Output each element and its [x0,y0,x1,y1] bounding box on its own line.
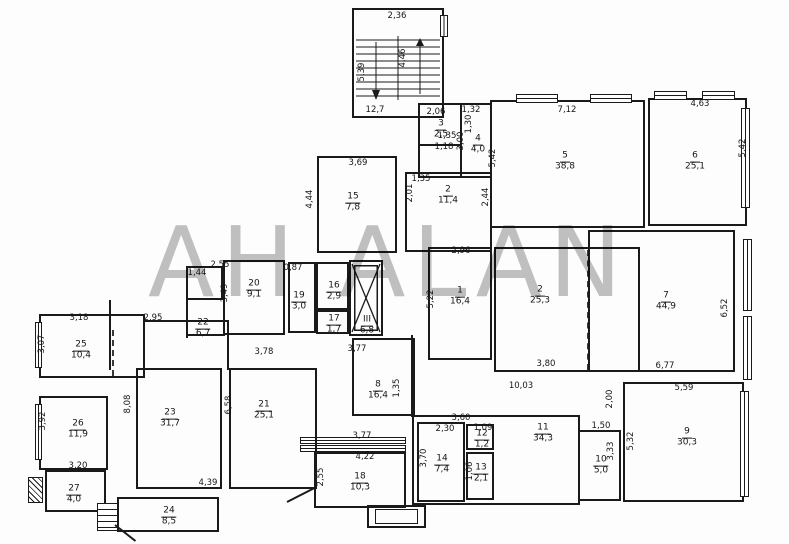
room-label-24-28: 248,5 [161,499,176,528]
dimension-47: 3,20 [69,461,88,471]
room-label-23-24: 2331,7 [160,401,180,430]
dimension-48: 3,92 [38,412,48,431]
room-label-2-13: 225,3 [530,278,550,307]
room-label-21-23: 2125,1 [254,393,274,422]
room-label-6-3: 625,1 [685,144,705,173]
dimension-28: 3,78 [255,347,274,357]
dimension-39: 3,70 [419,449,429,468]
dimension-20: 2,55 [211,260,230,270]
room-label-15-4: 157,8 [345,185,360,214]
dimension-13: 5,42 [488,149,498,168]
dimension-29: 3,77 [348,344,367,354]
dimension-45: 8,08 [123,395,133,414]
dimension-6: 1,35 [438,131,457,141]
window [740,391,749,497]
dimension-52: 1,35 [392,379,402,398]
dimension-49: 3,18 [70,313,89,323]
window [590,94,632,103]
dimension-2: 4,46 [398,49,408,68]
dimension-38: 1,09 [474,423,493,433]
dimension-40: 1,06 [465,462,475,481]
room-label-27-27: 274,0 [66,477,81,506]
room-label-25-25: 2510,4 [71,333,91,362]
window [654,91,687,100]
dimension-3: 12,7 [366,105,385,115]
room-label-18-22: 1810,3 [350,465,370,494]
wall-diagonal [287,487,315,502]
dimension-17: 3,69 [349,158,368,168]
dimension-1: 5,39 [357,63,367,82]
dimension-27: 6,77 [656,361,675,371]
room-label-22-10: 226,7 [195,311,210,340]
room-label-8-15: 816,4 [368,373,388,402]
dimension-50: 3,07 [37,335,47,354]
dimension-11: 4,63 [691,99,710,109]
dimension-33: 5,59 [675,383,694,393]
room-label-9-16: 930,3 [677,420,697,449]
dimension-46: 4,39 [199,478,218,488]
dimension-35: 3,33 [606,442,616,461]
dimension-8: 1,32 [462,105,481,115]
room-label-14-21: 147,4 [434,447,449,476]
dimension-21: 0,87 [284,263,303,273]
floor-plan: АН ALAN 32,544,0538,8625,1157,8211,4209,… [0,0,789,544]
wall [227,322,229,370]
dimension-37: 2,30 [436,424,455,434]
dimension-51: 2,95 [144,313,163,323]
room-label-11-18: 1134,3 [533,416,553,445]
room-25-outline [39,314,145,378]
dimension-22: 1,44 [188,268,207,278]
dimension-23: 3,49 [220,284,230,303]
room-label-5-2: 538,8 [555,144,575,173]
room-label-20-6: 209,1 [246,272,261,301]
room-21-outline [229,368,317,489]
dimension-24: 5,22 [426,290,436,309]
window-hatch [28,477,43,503]
dimension-4: 2,06 [427,107,446,117]
entrance-stoop-inner [375,509,418,524]
dimension-7: 1,18 [435,142,454,152]
dimension-12: 5,42 [738,139,748,158]
window [516,94,558,103]
dimension-32: 1,50 [592,421,611,431]
dimension-30: 10,03 [509,381,533,391]
dimension-43: 2,55 [316,468,326,487]
dimension-9: 3,00 [456,132,466,151]
dimension-0: 2,36 [388,11,407,21]
room-label-19-7: 193,0 [291,284,306,313]
room-label-III-11: III6,8 [360,308,374,337]
wall [186,300,188,338]
dimension-15: 2,01 [405,184,415,203]
window [743,239,752,311]
dimension-31: 2,00 [605,390,615,409]
dimension-36: 3,60 [452,413,471,423]
wall [411,335,413,417]
room-label-26-26: 2611,9 [68,412,88,441]
room-label-7-14: 744,9 [656,284,676,313]
room-label-1-12: 116,4 [450,279,470,308]
staircase-treads-icon [354,32,442,104]
partition-dashed [112,330,114,376]
dimension-14: 2,44 [481,188,491,207]
dimension-41: 4,22 [356,452,375,462]
dimension-26: 3,80 [537,359,556,369]
dimension-19: 2,96 [452,246,471,256]
dimension-18: 4,44 [305,190,315,209]
window [743,316,752,380]
room-label-16-8: 162,9 [326,274,341,303]
window [741,108,750,208]
dimension-10: 7,12 [558,105,577,115]
dimension-42: 3,77 [353,431,372,441]
dimension-16: 1,35 [412,174,431,184]
room-label-17-9: 171,7 [326,307,341,336]
room-label-13-20: 132,1 [473,456,488,485]
dimension-44: 6,58 [224,396,234,415]
room-label-2-5: 211,4 [438,178,458,207]
dimension-34: 5,32 [626,432,636,451]
dimension-25: 6,52 [720,299,730,318]
